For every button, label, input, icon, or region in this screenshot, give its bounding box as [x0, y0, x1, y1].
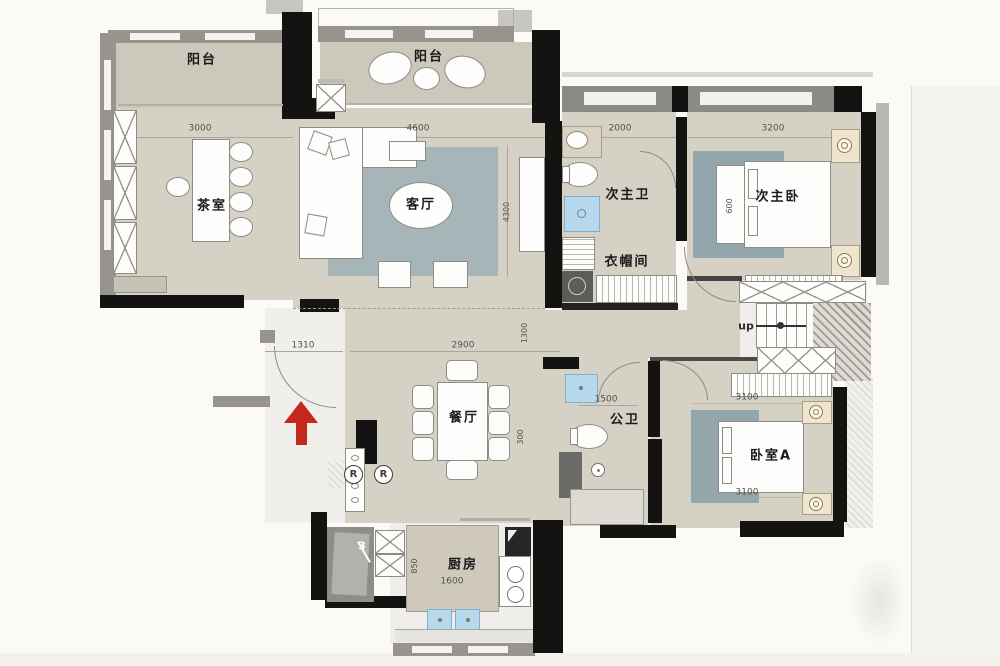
stair-count-label: 3 [358, 540, 366, 553]
tv-cabinet [519, 157, 545, 252]
chair [166, 177, 190, 197]
dim-tea-room-width: 3000 [189, 125, 212, 134]
stair-direction-dot [777, 322, 784, 329]
chair [412, 385, 434, 409]
tiny-label-mark [318, 79, 344, 83]
dim-wardrobe-depth: 600 [726, 198, 734, 213]
chair [412, 411, 434, 435]
chair [229, 167, 253, 187]
chair [488, 437, 510, 461]
room-label-living-room: 客厅 [406, 199, 436, 212]
chair [446, 460, 478, 480]
burner-icon [507, 586, 524, 603]
window [104, 60, 111, 110]
chair [229, 142, 253, 162]
wall-stub [213, 396, 270, 407]
wall [282, 12, 312, 100]
shower-icon [564, 196, 600, 232]
dim-kitchen-island-width: 1600 [441, 578, 464, 587]
dim-bedroom-a-width-bottom: 3100 [736, 489, 759, 498]
window [412, 646, 452, 653]
wall [543, 357, 579, 369]
balcony-parapet [562, 72, 873, 77]
print-smudge [850, 555, 908, 647]
sink-icon [455, 609, 480, 631]
wall [861, 112, 876, 277]
tall-cabinet [375, 530, 405, 554]
cushion [304, 213, 327, 236]
wall [676, 117, 687, 241]
stairs-up-label: up [738, 320, 754, 333]
shelf [596, 275, 677, 303]
wall [533, 520, 563, 653]
room-label-tea-room: 茶室 [197, 200, 227, 213]
window [700, 92, 812, 105]
window [468, 646, 508, 653]
wall [532, 30, 560, 123]
pillow [748, 206, 758, 236]
chair [446, 360, 478, 381]
wardrobe-cabinet [113, 166, 137, 220]
right-margin-panel [911, 86, 1000, 666]
chair [412, 437, 434, 461]
corridor-floor [545, 310, 757, 358]
counter [395, 629, 533, 642]
exterior-wall [876, 103, 889, 285]
wall [833, 387, 847, 522]
counter [113, 276, 167, 293]
toilet-tank [570, 428, 578, 445]
wall [562, 303, 678, 310]
outlet-r-icon: R [374, 465, 393, 484]
lamp-icon [809, 497, 823, 511]
dim-bath2-width: 2000 [609, 125, 632, 134]
wardrobe-cabinet [113, 110, 137, 164]
basin-icon [566, 131, 588, 149]
dim-kitchen-depth: 850 [411, 558, 419, 573]
wall [100, 295, 244, 308]
wall [545, 121, 562, 308]
room-label-dining-room: 餐厅 [449, 412, 479, 425]
room-label-public-bath: 公卫 [610, 414, 640, 427]
appliance-box [316, 84, 346, 112]
dimension-line [578, 405, 638, 406]
wall [672, 86, 688, 112]
shower-icon [565, 374, 598, 403]
wall [740, 521, 844, 537]
wall [834, 86, 862, 112]
chair [488, 385, 510, 409]
window [584, 92, 656, 105]
wall [300, 299, 339, 312]
side-table [413, 67, 440, 90]
room-label-balcony-left: 阳台 [187, 54, 217, 67]
floor-drain-icon [591, 463, 605, 477]
washer-icon [562, 271, 593, 302]
storage-cabinet [739, 281, 866, 303]
wardrobe-cabinet [113, 222, 137, 274]
sliding-door [460, 518, 530, 521]
storage-cabinet [757, 347, 836, 374]
shoe-rack [328, 461, 344, 489]
side-table [389, 141, 426, 161]
floor-plan: R R 3 阳台 阳台 茶室 客厅 餐厅 厨房 次主卫 衣帽间 次主卧 公卫 卧… [0, 0, 1000, 666]
dimension-line [115, 137, 293, 138]
window [425, 30, 473, 38]
room-label-cloak-room: 衣帽间 [604, 256, 649, 269]
washer-box [570, 489, 644, 525]
dim-living-depth: 4300 [503, 202, 511, 222]
wall [600, 525, 676, 538]
window [205, 33, 255, 40]
window [345, 30, 393, 38]
ottoman [378, 261, 411, 288]
dim-living-width: 4600 [407, 125, 430, 134]
entrance-arrow-stem [296, 423, 307, 445]
room-label-second-master-bedroom: 次主卧 [755, 191, 800, 204]
wall-stub [260, 330, 275, 343]
dimension-line [265, 351, 343, 352]
chair [229, 217, 253, 237]
toilet-tank [562, 166, 570, 183]
dim-dining-side: 300 [517, 429, 525, 444]
sliding-door [118, 104, 283, 106]
wall [648, 361, 660, 437]
ottoman [433, 261, 468, 288]
chair [488, 411, 510, 435]
exterior-hatch [845, 378, 873, 528]
room-label-second-master-bath: 次主卫 [605, 189, 650, 202]
tall-cabinet [375, 554, 405, 577]
dim-bedroom-a-width-top: 3100 [736, 394, 759, 403]
shelf [562, 237, 595, 270]
sink-icon [427, 609, 452, 631]
sliding-door [330, 103, 530, 105]
wall [311, 512, 327, 600]
dim-entry-width: 1310 [292, 342, 315, 351]
dim-public-bath-width: 1500 [595, 396, 618, 405]
dim-corridor: 1300 [521, 323, 529, 343]
window [104, 130, 111, 180]
outlet-r-icon: R [344, 465, 363, 484]
floor-transition [293, 308, 545, 309]
dim-dining-width: 2900 [452, 342, 475, 351]
pillow [722, 457, 732, 484]
chair [229, 192, 253, 212]
tea-table [192, 139, 230, 242]
room-label-kitchen: 厨房 [448, 559, 478, 572]
room-label-balcony-center: 阳台 [414, 51, 444, 64]
lamp-icon [809, 405, 823, 419]
dimension-line [350, 351, 560, 352]
window [130, 33, 180, 40]
entrance-arrow-icon [284, 401, 318, 423]
burner-icon [507, 566, 524, 583]
window [104, 200, 111, 250]
wall [648, 439, 662, 523]
fridge-door-mark [508, 530, 517, 542]
pillow [722, 427, 732, 454]
lamp-icon [837, 253, 852, 268]
room-label-bedroom-a: 卧室A [750, 450, 792, 463]
dim-bedroom2-width: 3200 [762, 125, 785, 134]
lamp-icon [837, 138, 852, 153]
